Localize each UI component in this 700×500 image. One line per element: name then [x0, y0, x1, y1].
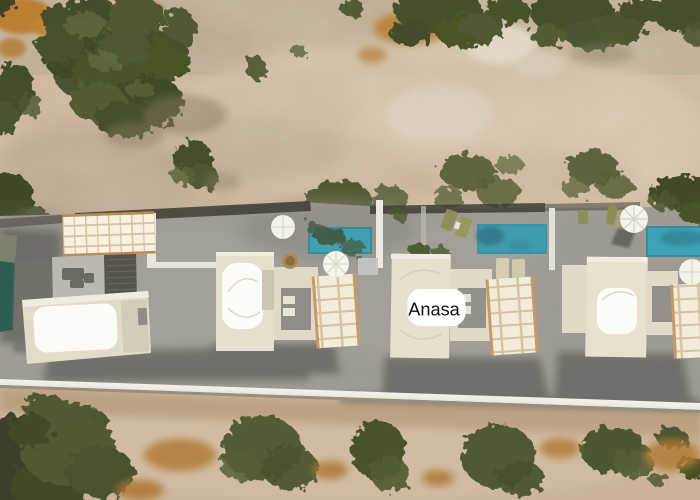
svg-text:Anasa: Anasa	[408, 300, 460, 320]
